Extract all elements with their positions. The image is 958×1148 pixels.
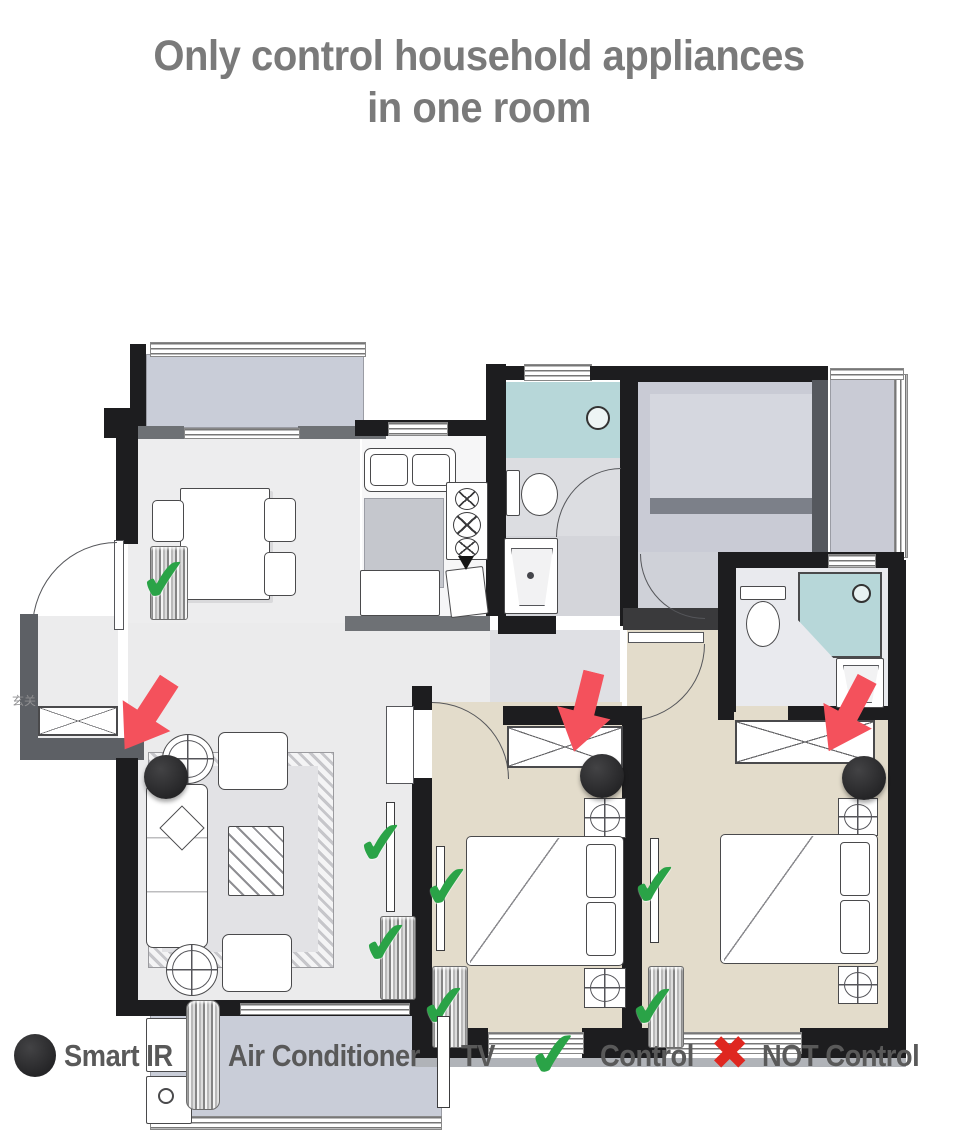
wall: [498, 616, 556, 634]
entry-door-arc: [32, 542, 117, 629]
bathroom-window: [524, 364, 592, 381]
sliding-door: [184, 428, 300, 439]
sink-drain: [527, 572, 534, 579]
coffee-table: [228, 826, 284, 896]
check-icon: ✔: [524, 1015, 583, 1093]
pillow: [840, 900, 870, 954]
smart-ir-dot: [144, 755, 188, 799]
shower-head-icon: [586, 406, 610, 430]
sink-basin: [370, 454, 408, 486]
kitchen-bottom-wall: [345, 616, 490, 631]
control-check-icon: ✔: [354, 811, 409, 876]
legend: Smart IR Air Conditioner TV ✔ Control ✖ …: [0, 990, 958, 1130]
wall: [718, 560, 736, 712]
wall: [116, 426, 138, 544]
armchair: [222, 934, 292, 992]
room-balcony-right: [830, 378, 896, 556]
wall: [130, 344, 146, 430]
toilet-bowl: [746, 601, 780, 647]
bedroom-2-door-leaf: [628, 632, 704, 643]
study-inner-area: [650, 394, 812, 498]
wall: [116, 758, 138, 1010]
pillow: [840, 842, 870, 896]
legend-label-tv: TV: [461, 1038, 495, 1074]
round-chair: [166, 944, 218, 996]
air-conditioner-icon: [186, 1000, 220, 1110]
toilet-tank: [506, 470, 520, 516]
cross-icon: ✖: [710, 1026, 749, 1081]
bed-fold-line: [724, 836, 814, 962]
legend-label-smart-ir: Smart IR: [64, 1038, 173, 1074]
pillow: [586, 844, 616, 898]
wall: [812, 380, 828, 556]
control-check-icon: ✔: [359, 911, 414, 976]
dining-table: [180, 488, 270, 600]
page-title: Only control household appliances in one…: [34, 30, 925, 135]
toilet-bowl: [521, 473, 558, 516]
corridor-middle: [490, 630, 620, 706]
control-check-icon: ✔: [137, 548, 192, 613]
shoe-cabinet: [38, 706, 118, 736]
window-sill: [138, 426, 184, 439]
page: Only control household appliances in one…: [0, 0, 958, 1148]
wall: [486, 364, 506, 616]
pillow: [586, 902, 616, 956]
wall: [888, 560, 906, 1038]
floor-plan: 玄关: [0, 168, 958, 968]
armchair: [218, 732, 288, 790]
wall: [718, 552, 904, 568]
bed-fold-line: [470, 838, 560, 964]
wall: [636, 366, 828, 382]
wall: [620, 378, 638, 626]
kitchen-window: [388, 422, 448, 436]
stove-burner: [455, 538, 479, 558]
dining-chair: [152, 500, 184, 542]
sink-basin: [412, 454, 450, 486]
dish-rack: [445, 566, 489, 618]
wall: [718, 706, 734, 720]
bathroom-right-window: [828, 554, 876, 568]
bedroom-1-door-leaf: [386, 706, 414, 784]
dining-chair: [264, 552, 296, 596]
stove-burner: [453, 512, 481, 538]
hallway: [128, 623, 490, 709]
balcony-right-top-window: [830, 368, 904, 380]
smart-ir-dot: [580, 754, 624, 798]
stove-burner: [455, 488, 479, 510]
control-check-icon: ✔: [628, 853, 683, 918]
title-line-2: in one room: [34, 82, 925, 134]
smart-ir-dot: [842, 756, 886, 800]
kitchen-cart: [360, 570, 440, 616]
wall: [412, 686, 432, 710]
study-band: [650, 498, 812, 514]
toilet-tank: [740, 586, 786, 600]
entry-label: 玄关: [12, 692, 36, 709]
nightstand: [838, 798, 878, 836]
shower-head-icon: [852, 584, 871, 603]
dining-chair: [264, 498, 296, 542]
wall: [506, 366, 524, 380]
legend-label-air-conditioner: Air Conditioner: [228, 1038, 420, 1074]
balcony-right-window: [894, 374, 908, 558]
nightstand: [584, 798, 626, 838]
plan-marker-triangle: [458, 556, 474, 570]
title-line-1: Only control household appliances: [34, 30, 925, 82]
smart-ir-dot-icon: [14, 1034, 56, 1077]
tv-icon: [437, 1016, 450, 1108]
legend-label-not-control: NOT Control: [762, 1038, 919, 1074]
balcony-top-window: [150, 342, 366, 357]
room-balcony-top-left: [146, 354, 364, 428]
legend-label-control: Control: [600, 1038, 694, 1074]
control-check-icon: ✔: [420, 855, 475, 920]
